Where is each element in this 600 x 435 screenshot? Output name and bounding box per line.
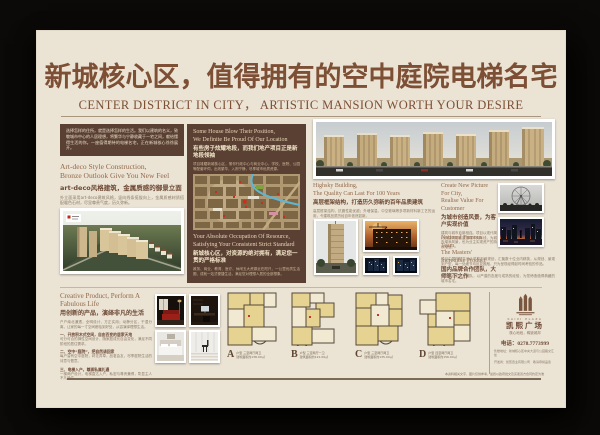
- brand-tagline: 核心地段，稀缺城邦: [494, 331, 556, 336]
- artdeco-heading-en: Art-deco Style Construction, Bronze Outl…: [60, 162, 184, 180]
- location-heading-en: Some House Blow Their Position, We Defin…: [193, 129, 300, 144]
- phone-number: 电话：0278.7773999: [494, 339, 556, 347]
- vision-heading-cn: 为城市创造风景，为客户实现价值: [441, 215, 497, 229]
- floorplan-label-b: B 户型 三室两厅一卫建筑面积约121.00㎡: [291, 350, 349, 359]
- ferris-wheel-photo: [498, 183, 544, 213]
- location-paragraph-2: 政务、商业、教育、医疗、休闲五大资源近在咫尺，一公里优质生活圈，成就一站式便捷生…: [193, 267, 300, 276]
- footer-rule: [67, 378, 541, 380]
- vision-heading-en: Create New Picture For City, Realise Val…: [441, 183, 497, 213]
- location-paragraph-1: 项目雄踞新城核心区，紧邻行政中心与商业中心，学校、医院、公园等配套环伺，出则繁华…: [193, 162, 300, 171]
- floorplan-d: [419, 292, 471, 346]
- address-line-1: 售楼地址：新城核心区中央大道与公园路交汇处: [494, 349, 556, 358]
- headline-cn: 新城核心区，值得拥有的空中庭院电梯名宅: [37, 62, 565, 92]
- floorplan-c: [355, 292, 403, 346]
- poster: 新城核心区，值得拥有的空中庭院电梯名宅 CENTER DISTRICT IN C…: [36, 30, 566, 408]
- left-intro-box: 选择怎样的住所，就是选择怎样的生活。我们以建筑的名义，致敬城市中心的人居理想，将…: [60, 124, 184, 156]
- floorplan-b: [291, 292, 335, 346]
- creative-heading-cn: 用创新的产品，演绎非凡的生活: [60, 310, 152, 317]
- floorplan-label-d: D 户型 四室两厅两卫建筑面积约156.00㎡: [419, 350, 477, 359]
- interior-photo-bedroom: [155, 330, 186, 363]
- night-photo-2: [393, 256, 419, 275]
- creative-item-2-body: 每户皆有空中庭院，莳花弄草，品茗会友，尽享庭院生活的诗意与惬意。: [60, 354, 152, 363]
- headline-en: CENTER DISTRICT IN CITY， ARTISTIC MANSIO…: [37, 98, 565, 112]
- artdeco-heading-cn: art-deco风格建筑，金属质感的御景立面: [60, 184, 184, 192]
- floorplan-a: [227, 292, 277, 346]
- interior-photo-livingroom: [155, 294, 186, 327]
- resource-heading-cn: 新城核心区，对资源的绝对拥有，满足您一贯的严格标准: [193, 251, 300, 265]
- skyline-photo: [498, 217, 544, 247]
- resource-heading-en: Your Absolute Occupation Of Resource, Sa…: [193, 234, 300, 249]
- location-heading-cn: 有些房子炫耀地段，而我们地产项目正是新地段领袖: [193, 146, 300, 160]
- quality-paragraph: 高层框架结构，抗震性能优越；外墙保温、中空玻璃等多项新材料新工艺的运用，令建筑品…: [313, 209, 435, 218]
- location-panel: Some House Blow Their Position, We Defin…: [187, 124, 306, 283]
- quality-section: Highsky Building, The Quality Can Last F…: [313, 183, 435, 218]
- location-map: [193, 174, 300, 230]
- creative-item-1-body: 可分可合的弹性空间设计，随家庭成长自由变化，满足不同阶段的居住需求。: [60, 337, 152, 346]
- address-line-2: 开发商：凯熙置业有限公司 敬请恭候品鉴: [494, 360, 556, 364]
- brand-divider: [489, 292, 490, 374]
- towers-logo-icon: [512, 292, 538, 316]
- header-divider: [61, 116, 541, 117]
- artdeco-paragraph-1: 外立面采用art-deco建筑风格，竖向线条挺拔向上，金属质感材质搭配暖色石材，…: [60, 195, 184, 206]
- panorama-image: [313, 119, 555, 179]
- quality-heading-cn: 高层框架结构，打造历久弥新的百年品质建筑: [313, 200, 435, 207]
- night-photo-1: [363, 256, 389, 275]
- section-divider: [60, 287, 542, 288]
- floorplan-label-c: C 户型 三室两厅两卫建筑面积约135.00㎡: [355, 350, 413, 359]
- brand-name-cn: 凯熙广场: [494, 321, 556, 330]
- interior-photo-study: [189, 294, 220, 327]
- interior-photo-studio: [189, 330, 220, 363]
- floorplan-label-a: A 户型 三室两厅两卫建筑面积约138.00㎡: [227, 350, 285, 359]
- creative-section: Creative Product, Perform A Fabulous Lif…: [60, 292, 152, 381]
- team-paragraph-2: 强强联合的开发团队，以严谨的态度与成熟的经验，为您缔造值得典藏的城市名宅。: [441, 274, 555, 283]
- team-paragraph-1: 项目由国内知名设计机构担纲规划，汇聚数十位业内精英，从规划、景观到户型，每一处细…: [441, 257, 555, 266]
- aerial-render-image: [60, 208, 184, 274]
- construction-photo: [363, 219, 419, 252]
- quality-heading-en: Highsky Building, The Quality Can Last F…: [313, 183, 435, 198]
- tower-photo: [314, 219, 358, 275]
- creative-heading-en: Creative Product, Perform A Fabulous Lif…: [60, 292, 152, 308]
- creative-intro: 户户南北通透，全明设计，方正实用；动静分区，干湿分离，让家的每一寸空间都恰到好处…: [60, 320, 152, 329]
- brand-block: KAIXI PLAZA 凯熙广场 核心地段，稀缺城邦 电话：0278.77739…: [494, 292, 556, 364]
- footer-disclaimer: 本资料相关文字、图片仅供参考，最终以政府批文及买卖双方合同约定为准: [317, 372, 544, 376]
